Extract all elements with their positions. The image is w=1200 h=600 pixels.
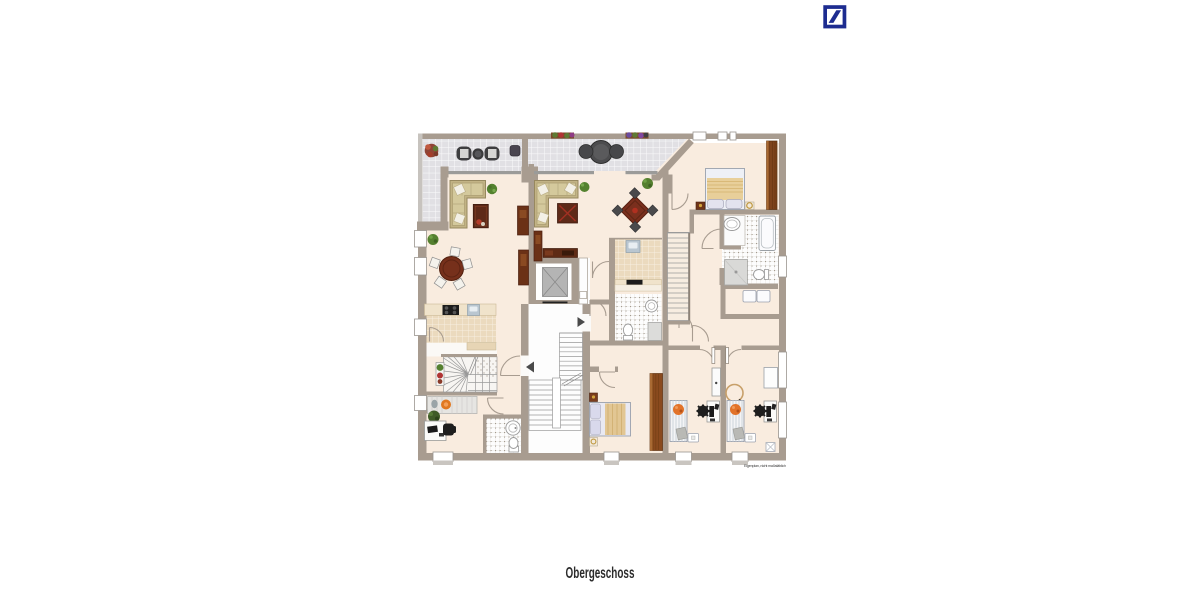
svg-text:Eigenplan, nicht maßstäblich: Eigenplan, nicht maßstäblich: [744, 464, 786, 468]
